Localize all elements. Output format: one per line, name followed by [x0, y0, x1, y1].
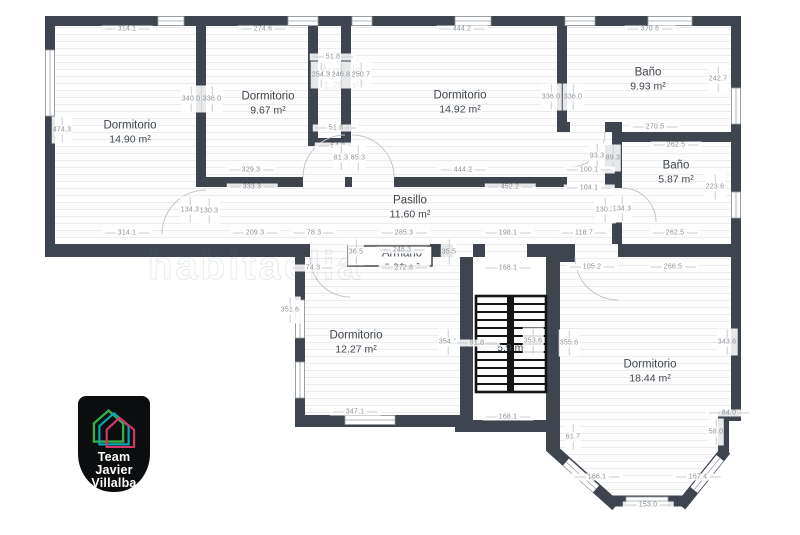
- dimension-label: 167.4: [673, 474, 724, 481]
- dimension-label: 93.3: [589, 143, 605, 170]
- dimension-label: 314.1: [102, 230, 153, 237]
- dimension-label: 250.7: [351, 62, 372, 89]
- dimension-label: 166.1: [572, 474, 623, 481]
- room-area: 18.44 m²: [623, 373, 676, 387]
- dimension-label: 168.1: [483, 265, 534, 272]
- room-label: Dormitorio14.90 m²: [103, 119, 156, 148]
- room-label: Dormitorio14.92 m²: [433, 89, 486, 118]
- dimension-label: 61.7: [565, 424, 581, 451]
- dimension-label: 35.5: [441, 239, 457, 266]
- logo-text: Team Javier Villalba: [91, 451, 136, 490]
- room-area: 5.87 m²: [658, 174, 694, 188]
- dimension-label: 100.1: [564, 167, 615, 174]
- dimension-label: 242.7: [708, 66, 729, 93]
- room-label: Dormitorio9.67 m²: [241, 90, 294, 119]
- dimension-label: 36.5: [348, 239, 364, 266]
- dimension-label: 444.2: [438, 167, 489, 174]
- dimension-label: 130.3: [199, 198, 220, 225]
- room-label: Dormitorio18.44 m²: [623, 358, 676, 387]
- dimension-label: 248.3: [377, 247, 428, 254]
- dimension-label: 78.3: [291, 230, 337, 237]
- dimension-label: 118.7: [559, 230, 609, 237]
- dimension-label: 81.3: [333, 145, 349, 172]
- room-name: Dormitorio: [623, 358, 676, 373]
- dimension-label: 336.0: [563, 84, 584, 111]
- room-label: Dormitorio12.27 m²: [329, 329, 382, 358]
- dimension-label: 452.2: [485, 184, 536, 191]
- dimension-label: 336.0: [541, 84, 562, 111]
- room-name: Dormitorio: [241, 90, 294, 105]
- dimension-label: 370.6: [625, 26, 676, 33]
- dimension-label: 58.0: [708, 419, 724, 446]
- room-name: Pasillo: [390, 194, 431, 209]
- logo-houses-icon: [89, 406, 139, 448]
- room-name: Baño: [630, 66, 666, 81]
- room-area: 11.60 m²: [390, 209, 431, 223]
- dimension-label: 209.3: [230, 230, 281, 237]
- dimension-label: 474.3: [52, 117, 73, 144]
- room-name: Dormitorio: [329, 329, 382, 344]
- dimension-label: 134.3: [180, 197, 201, 224]
- dimension-label: 134.3: [612, 196, 633, 223]
- dimension-label: 343.6: [717, 329, 738, 356]
- dimension-label: 223.6: [705, 174, 726, 201]
- dimension-label: 254.3: [311, 62, 332, 89]
- dimension-label: 336.0: [202, 86, 223, 113]
- dimension-label: 340.0: [181, 86, 202, 113]
- dimension-label: 85.3: [350, 145, 366, 172]
- room-area: 14.90 m²: [103, 134, 156, 148]
- dimension-label: 153.0: [623, 502, 674, 509]
- dimension-label: 105.2: [567, 264, 618, 271]
- room-area: 9.93 m²: [630, 81, 666, 95]
- dimension-label: 355.6: [559, 330, 580, 357]
- dimension-label: 51.8: [310, 54, 356, 61]
- dimension-label: 351.6: [280, 297, 301, 324]
- dimension-label: 84.0: [706, 410, 752, 417]
- dimension-label: 314.1: [102, 26, 153, 33]
- logo-line-1: Team: [98, 450, 131, 464]
- dimension-label: 198.1: [483, 230, 534, 237]
- dimension-label: 74.3: [290, 265, 336, 272]
- dimension-label: 266.5: [648, 264, 699, 271]
- room-label: Pasillo11.60 m²: [390, 194, 431, 223]
- dimension-label: 168.1: [483, 414, 534, 421]
- dimension-label: 51.8: [313, 125, 359, 132]
- dimension-label: 262.5: [651, 142, 702, 149]
- floor-plan: habitaclia Team Javier Villalba Dormitor…: [0, 0, 800, 535]
- room-label: Baño5.87 m²: [658, 159, 694, 188]
- dimension-label: 104.1: [564, 185, 615, 192]
- dimension-label: 272.8: [379, 265, 430, 272]
- logo-line-3: Villalba: [91, 476, 136, 490]
- room-area: 12.27 m²: [329, 344, 382, 358]
- dimension-label: 329.3: [226, 167, 277, 174]
- room-label: Baño9.93 m²: [630, 66, 666, 95]
- dimension-label: 347.1: [330, 409, 381, 416]
- agency-logo: Team Javier Villalba: [78, 396, 150, 492]
- room-name: Baño: [658, 159, 694, 174]
- dimension-label: 285.3: [379, 230, 430, 237]
- dimension-label: 246.8: [331, 62, 352, 89]
- room-name: Dormitorio: [433, 89, 486, 104]
- dimension-label: 333.3: [227, 184, 278, 191]
- logo-line-2: Javier: [95, 463, 132, 477]
- room-area: 9.67 m²: [241, 105, 294, 119]
- dimension-label: 353.6: [523, 328, 544, 355]
- room-name: Dormitorio: [103, 119, 156, 134]
- dimension-label: 91.8: [454, 340, 500, 347]
- dimension-label: 270.5: [630, 124, 681, 131]
- room-area: 14.92 m²: [433, 104, 486, 118]
- dimension-label: 274.6: [238, 26, 289, 33]
- dimension-label: 262.5: [650, 230, 701, 237]
- dimension-label: 444.2: [437, 26, 488, 33]
